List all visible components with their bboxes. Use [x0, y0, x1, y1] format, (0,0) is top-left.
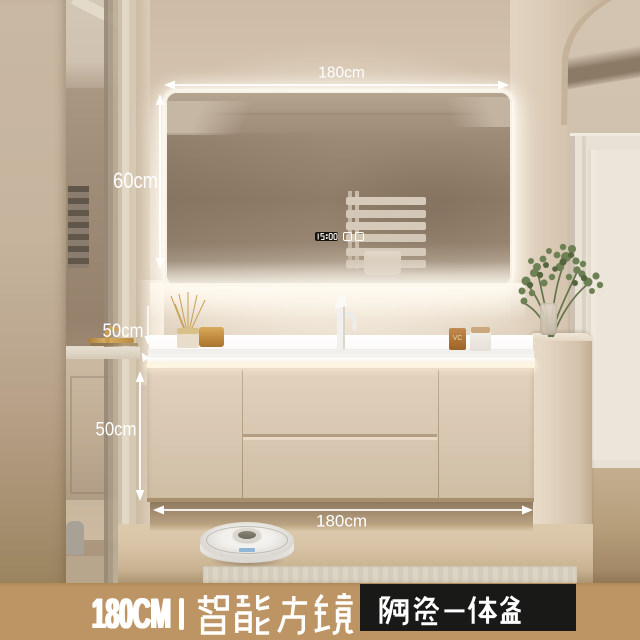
- svg-text:50cm: 50cm: [103, 321, 144, 342]
- svg-text:60cm: 60cm: [113, 168, 158, 193]
- svg-text:180cm: 180cm: [318, 65, 365, 82]
- svg-text:180cm: 180cm: [316, 512, 367, 531]
- svg-text:50cm: 50cm: [96, 420, 137, 441]
